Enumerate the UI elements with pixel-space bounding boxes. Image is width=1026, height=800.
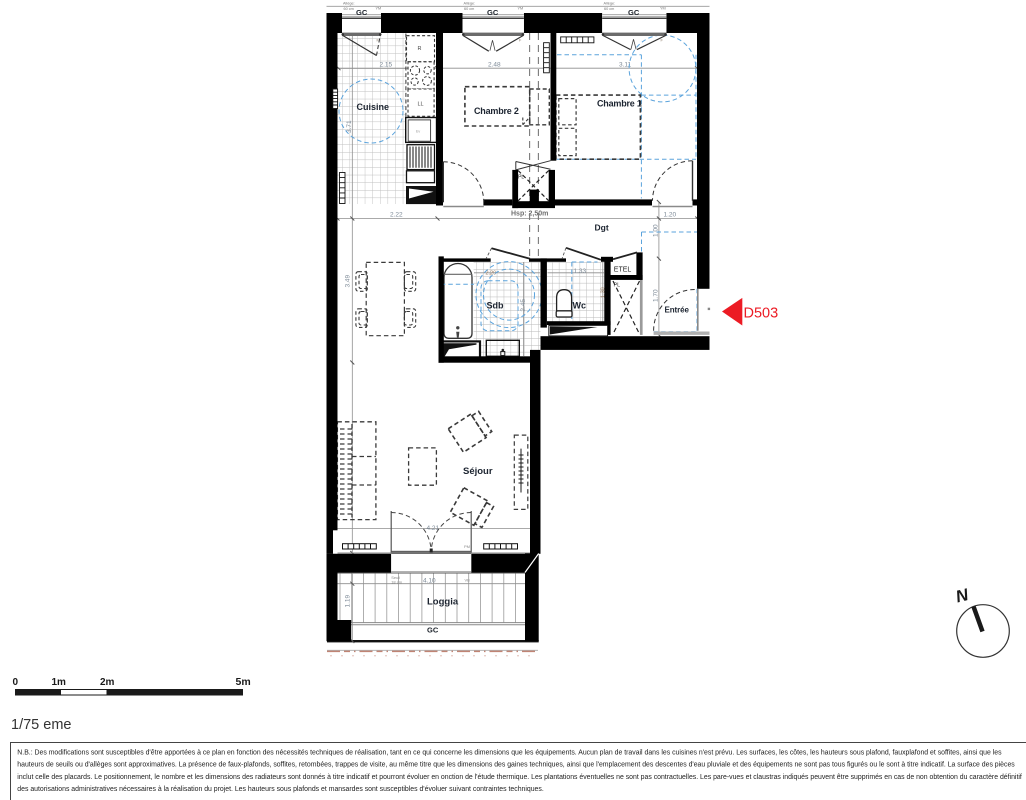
svg-text:60 cm: 60 cm [604,7,614,11]
svg-text:Ev: Ev [416,130,420,134]
svg-text:GC: GC [628,8,640,17]
svg-text:LL: LL [418,102,424,108]
svg-text:4.10: 4.10 [423,578,436,585]
svg-text:YM: YM [660,7,666,11]
svg-text:0: 0 [13,677,19,688]
svg-text:GC: GC [487,8,499,17]
svg-text:PM: PM [464,544,470,549]
svg-text:Séjour: Séjour [463,466,493,477]
svg-text:3.71: 3.71 [346,120,353,133]
svg-text:Cuisine: Cuisine [357,102,390,112]
svg-text:Chambre 1: Chambre 1 [597,99,642,109]
svg-text:1.20: 1.20 [664,212,677,219]
svg-text:GC: GC [356,8,368,17]
svg-text:inclut celle des placards. Le: inclut celle des placards. Le positionne… [17,774,1022,781]
svg-text:Allège:: Allège: [464,2,476,6]
svg-text:YM: YM [376,7,382,11]
svg-text:3.49: 3.49 [345,274,352,287]
svg-text:1.00: 1.00 [653,224,660,237]
svg-text:hauteurs de seuils ou d'allège: hauteurs de seuils ou d'allèges sont app… [17,762,1015,769]
svg-text:1/75 eme: 1/75 eme [11,717,71,733]
svg-text:60 cm: 60 cm [464,7,474,11]
svg-text:ETEL: ETEL [614,266,632,273]
svg-text:1.33: 1.33 [574,268,587,275]
svg-text:Allège:: Allège: [604,2,616,6]
svg-text:Dgt: Dgt [595,223,609,233]
svg-text:60 cm: 60 cm [344,7,354,11]
svg-text:1.19: 1.19 [345,594,352,607]
svg-text:GC: GC [427,626,439,635]
svg-text:YM: YM [518,7,524,11]
svg-text:2.22: 2.22 [390,212,403,219]
svg-text:2m: 2m [100,677,115,688]
svg-text:Chambre 2: Chambre 2 [474,106,519,116]
svg-text:R: R [418,46,422,52]
svg-text:2.29: 2.29 [486,270,497,276]
svg-text:2.45: 2.45 [520,299,527,312]
svg-text:Wc: Wc [573,301,587,311]
svg-text:Entrée: Entrée [665,306,690,315]
svg-text:Loggia: Loggia [427,597,459,608]
svg-text:VB: VB [465,578,471,583]
svg-text:1.70: 1.70 [653,289,660,302]
svg-text:D503: D503 [744,306,779,322]
svg-text:PL: PL [518,175,524,181]
svg-text:18 cm: 18 cm [391,580,403,585]
svg-text:des autorisations administrati: des autorisations administratives nécess… [17,786,544,793]
svg-text:Sdb: Sdb [487,301,505,311]
svg-text:PL: PL [614,283,621,289]
svg-text:Allège:: Allège: [343,2,355,6]
svg-text:2.15: 2.15 [380,61,393,68]
svg-text:1m: 1m [52,677,67,688]
svg-text:2.48: 2.48 [488,61,501,68]
svg-text:5m: 5m [236,676,251,688]
svg-text:N.B.: Des modifications sont s: N.B.: Des modifications sont susceptible… [17,750,1002,757]
